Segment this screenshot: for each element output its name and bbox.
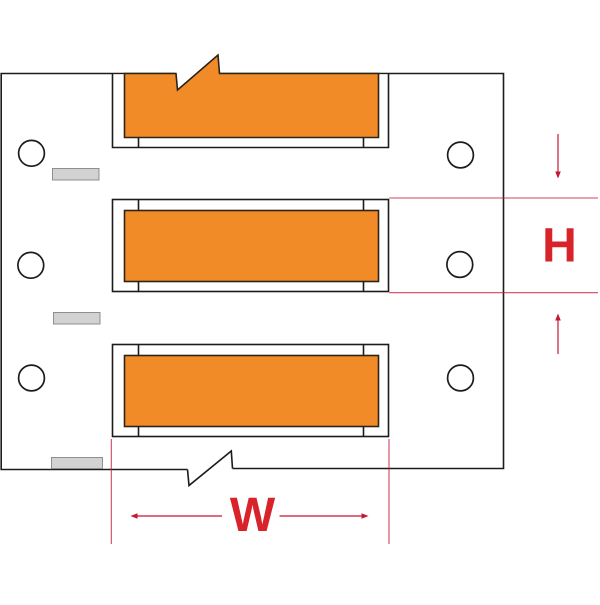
svg-text:H: H (542, 220, 577, 273)
svg-text:W: W (230, 489, 276, 542)
